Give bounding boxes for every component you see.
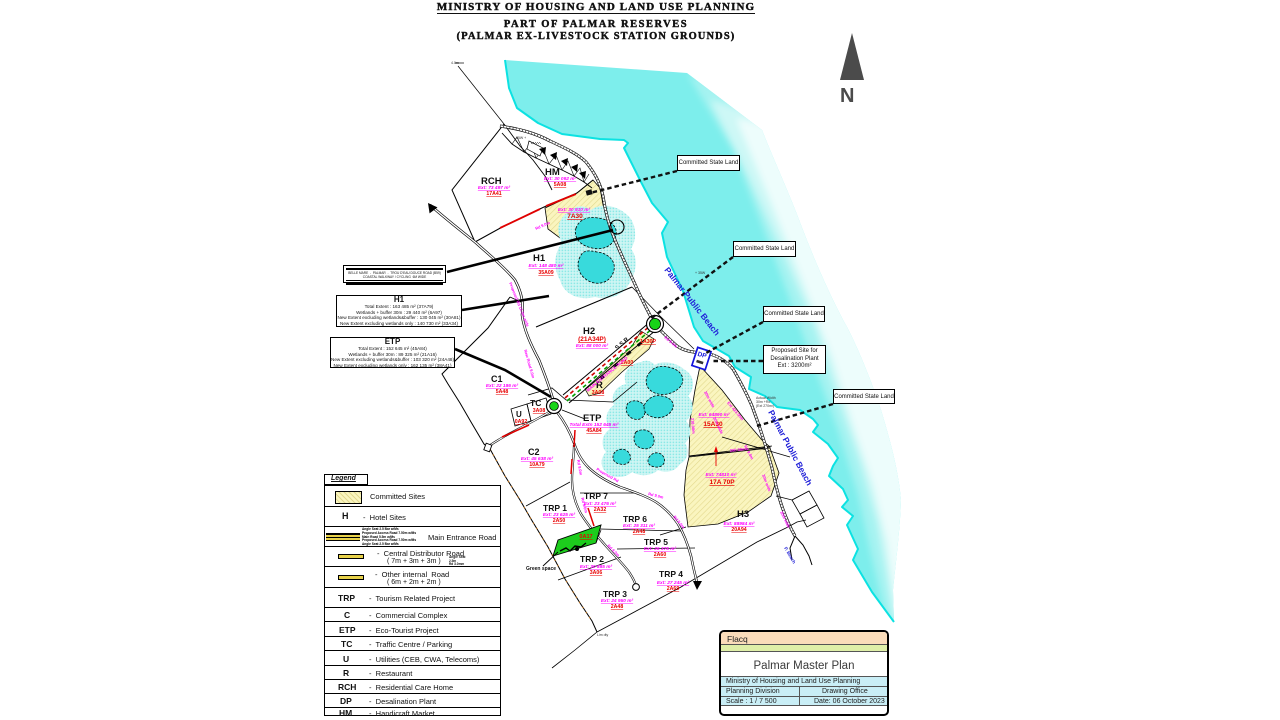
svg-text:7A30: 7A30: [567, 213, 583, 220]
svg-text:35A09: 35A09: [538, 270, 553, 276]
svg-text:Ext: 148 480 m²: Ext: 148 480 m²: [529, 263, 564, 269]
svg-text:5A08: 5A08: [554, 182, 567, 188]
svg-text:5A48: 5A48: [496, 389, 509, 395]
svg-text:Ext: 74810 m²: Ext: 74810 m²: [706, 472, 737, 478]
svg-text:TRP 2: TRP 2: [580, 554, 604, 564]
svg-text:+ 35W: + 35W: [695, 271, 706, 275]
svg-text:TRP 5: TRP 5: [644, 537, 668, 547]
svg-text:3A06: 3A06: [590, 570, 603, 576]
svg-text:C2: C2: [528, 447, 540, 457]
svg-text:TRP 3: TRP 3: [603, 589, 627, 599]
svg-text:1A30P: 1A30P: [640, 339, 656, 345]
svg-text:TRP 1: TRP 1: [543, 503, 567, 513]
svg-text:2A60: 2A60: [654, 552, 667, 558]
svg-text:10A79: 10A79: [529, 462, 544, 468]
svg-text:H1: H1: [533, 253, 546, 264]
svg-text:Ext: 88 000 m²: Ext: 88 000 m²: [576, 343, 609, 349]
svg-text:U: U: [516, 410, 522, 419]
svg-text:17A41: 17A41: [486, 191, 501, 197]
svg-text:TC: TC: [530, 398, 541, 408]
svg-text:Lim dty: Lim dty: [597, 633, 609, 637]
svg-text:20A94: 20A94: [731, 527, 746, 533]
svg-text:3A08: 3A08: [533, 408, 546, 414]
svg-text:TRP 6: TRP 6: [623, 514, 647, 524]
svg-text:2A32: 2A32: [594, 507, 607, 513]
svg-text:35W +: 35W +: [516, 136, 526, 140]
svg-text:17A 70P: 17A 70P: [709, 479, 735, 486]
svg-text:45A84: 45A84: [586, 428, 601, 434]
svg-text:P. Beach: P. Beach: [783, 546, 797, 565]
svg-text:H3: H3: [737, 509, 749, 520]
svg-text:TRP 4: TRP 4: [659, 569, 683, 579]
svg-text:0A92: 0A92: [515, 419, 528, 425]
svg-text:TRP 7: TRP 7: [584, 491, 608, 501]
svg-text:3A08: 3A08: [592, 390, 605, 396]
svg-text:(Ext 270m²): (Ext 270m²): [756, 404, 774, 408]
svg-text:(21A34P): (21A34P): [578, 336, 606, 343]
svg-text:30m wide: 30m wide: [779, 510, 792, 529]
svg-text:2A48: 2A48: [611, 604, 624, 610]
svg-text:0A17: 0A17: [579, 534, 592, 540]
svg-text:Green space: Green space: [526, 566, 556, 572]
svg-text:2A50: 2A50: [553, 518, 566, 524]
svg-text:C1: C1: [491, 374, 503, 384]
svg-text:N: N: [840, 85, 854, 107]
svg-text:2A48: 2A48: [633, 529, 646, 535]
svg-text:2A69: 2A69: [667, 586, 680, 592]
svg-text:Rd 9.0m: Rd 9.0m: [663, 335, 678, 349]
